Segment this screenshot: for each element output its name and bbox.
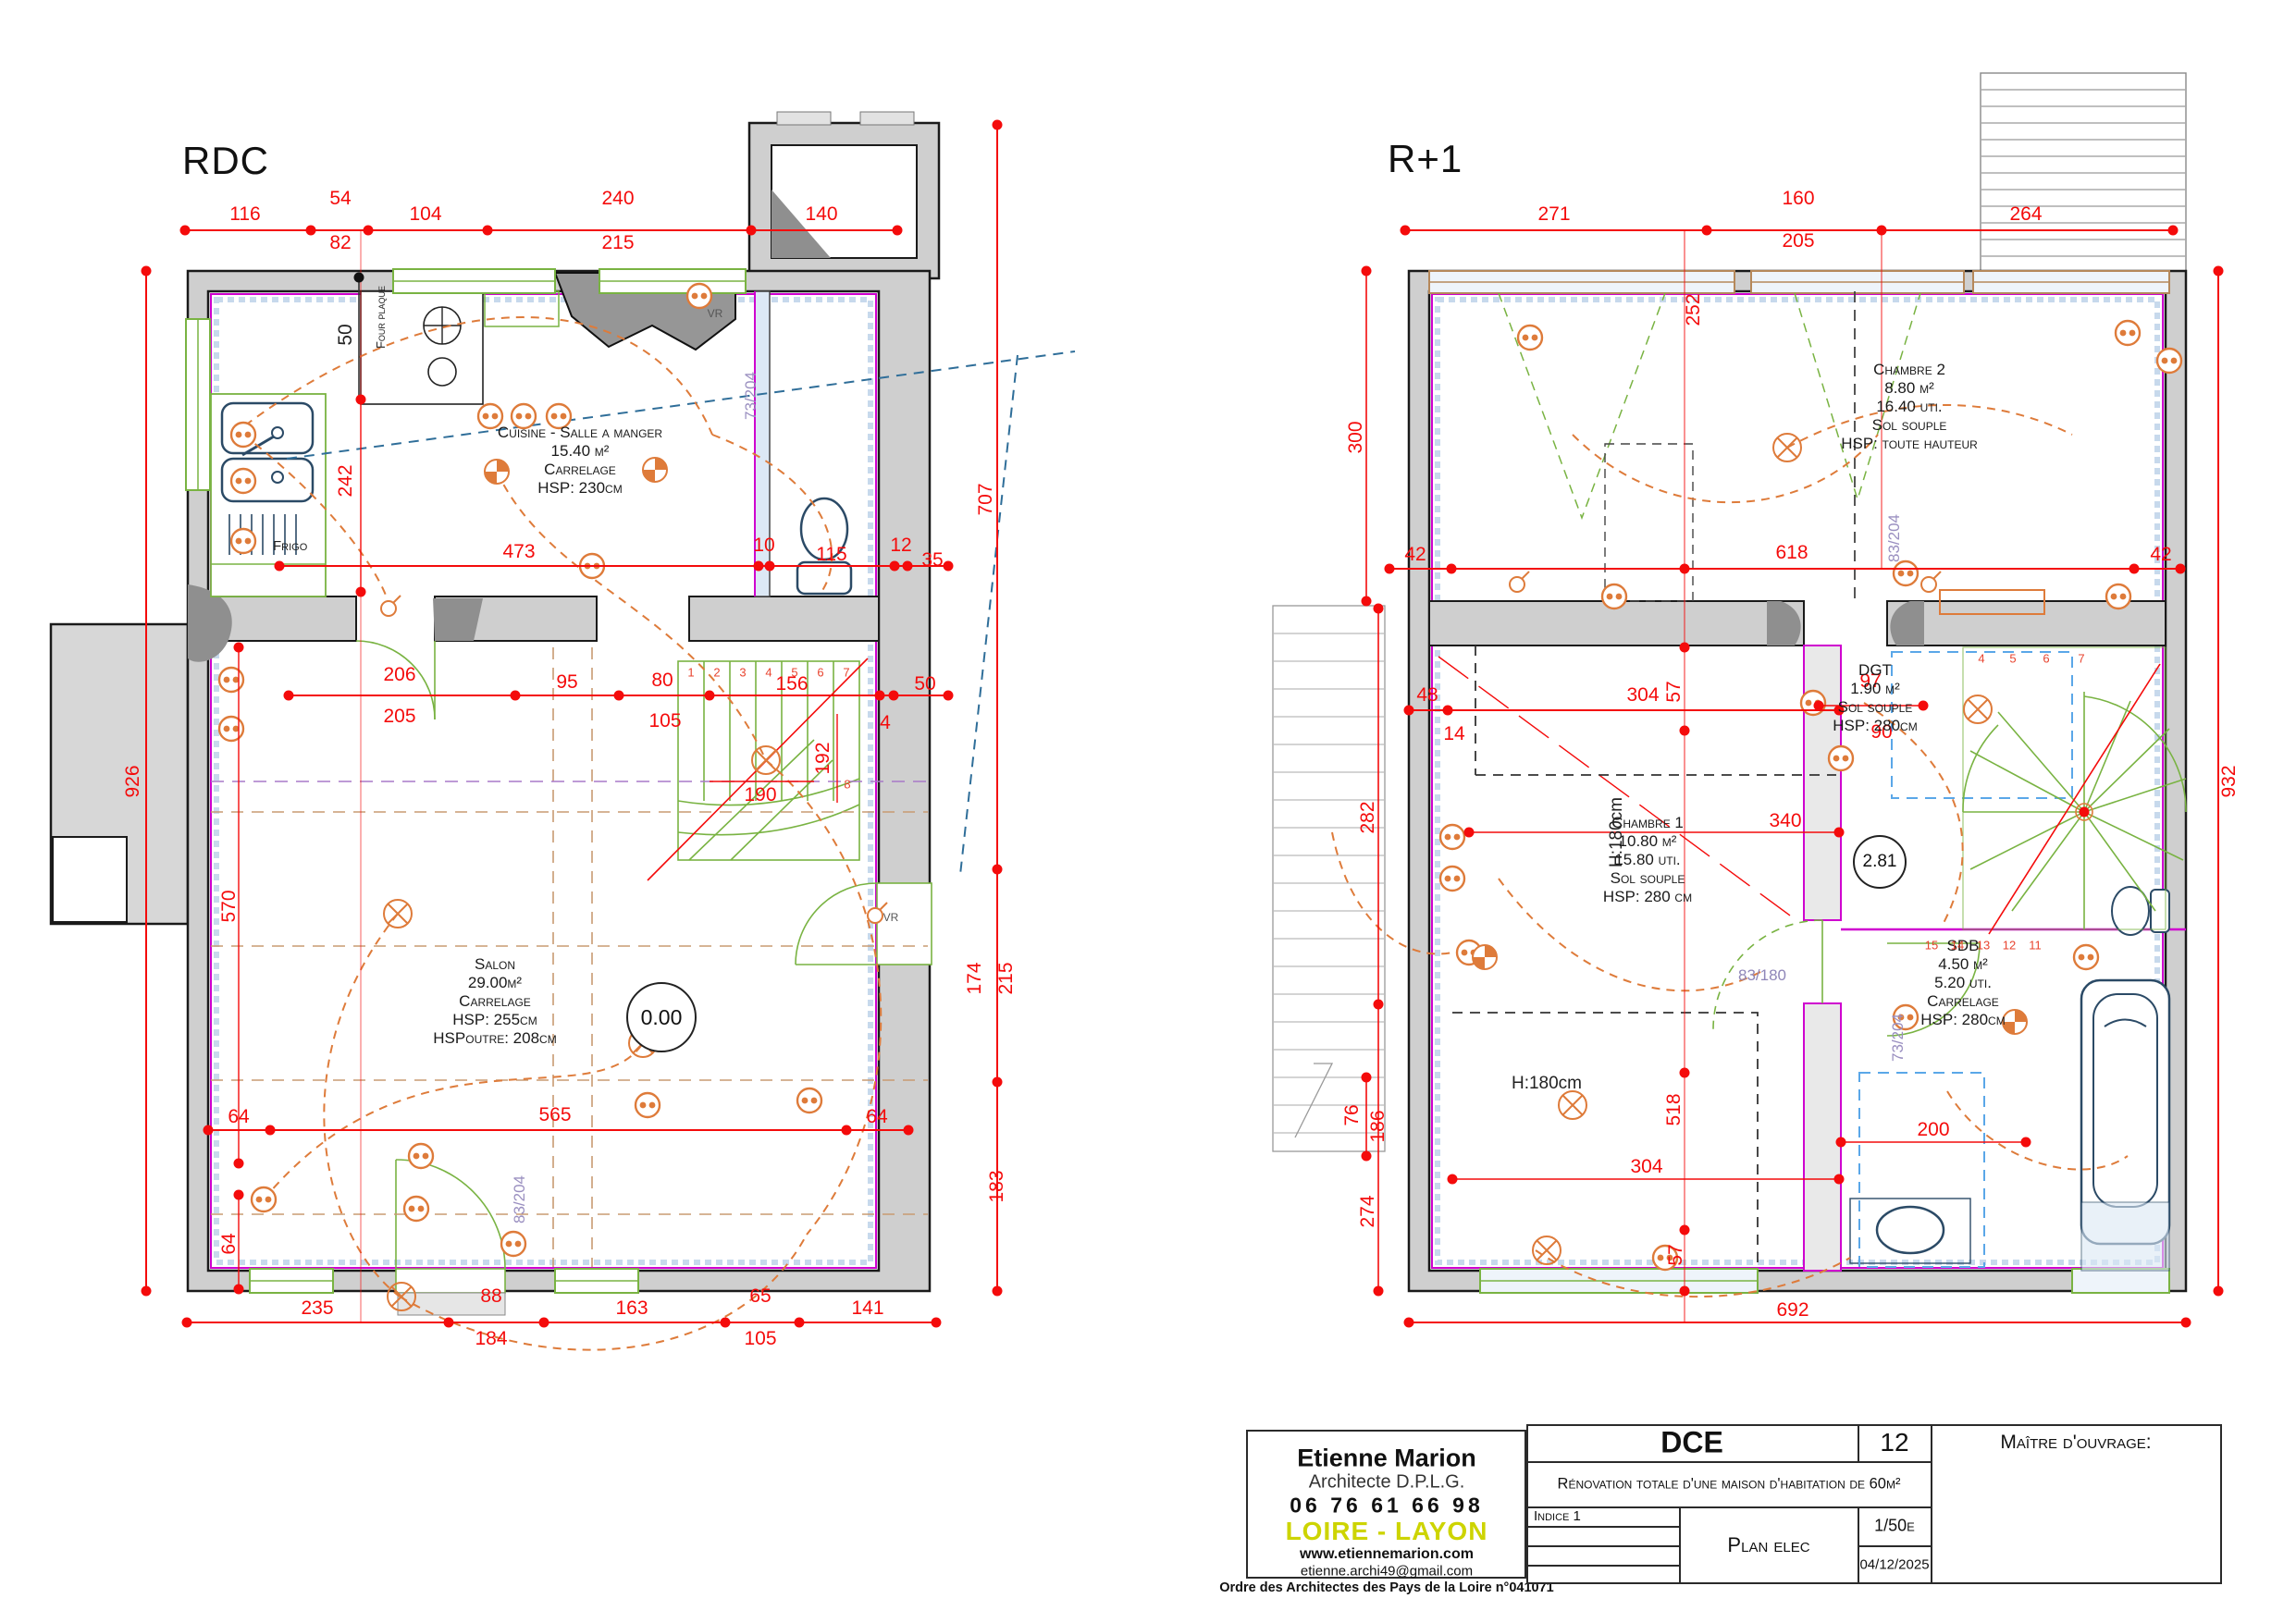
- rdc-plan-title: RDC: [182, 139, 269, 183]
- room-label-cuisine: Cuisine - Salle a manger 15.40 m² Carrel…: [498, 424, 662, 498]
- dimension-label: 932: [2218, 765, 2240, 797]
- room-area-useful: 5.20 uti.: [1920, 974, 2005, 992]
- dimension-label: 565: [538, 1104, 571, 1126]
- dimension-label: 186: [1367, 1110, 1389, 1142]
- indice-label: Indice 1: [1534, 1508, 1581, 1524]
- dimension-label: 271: [1537, 203, 1570, 226]
- door-size-label: 73/204: [742, 372, 760, 420]
- dimension-label: 10: [753, 535, 774, 557]
- room-floor: Sol souple: [1603, 869, 1692, 888]
- dimension-label: 215: [601, 232, 634, 254]
- stair-number: 5: [2009, 652, 2016, 666]
- stair-number: 5: [791, 666, 797, 680]
- dimension-label: 205: [383, 706, 415, 728]
- dimension-label: 105: [744, 1328, 776, 1350]
- stair-number: 6: [2043, 652, 2049, 666]
- dimension-label: 570: [218, 890, 241, 922]
- dimension-label: 190: [744, 784, 776, 806]
- r1-roof-hatch-left: [1273, 606, 1385, 1151]
- dimension-label: 473: [502, 541, 535, 563]
- floor-plan-sheet: RDC 116 54 82 104 240 215 140 473 10 115…: [0, 0, 2296, 1623]
- dimension-label: 105: [648, 710, 681, 732]
- dimension-label: 35: [921, 549, 943, 572]
- dimension-label: 115: [816, 544, 846, 566]
- stair-number: 11: [2029, 939, 2042, 953]
- dimension-label: 163: [615, 1297, 648, 1320]
- r1-top-windows: [1429, 271, 2169, 518]
- dimension-label: 183: [986, 1170, 1008, 1202]
- r1-roof-hatch-topright: [1981, 73, 2186, 278]
- dimension-label: 707: [975, 483, 997, 515]
- vr-tag: VR: [883, 911, 899, 924]
- architect-title: Architecte D.P.L.G.: [1309, 1472, 1465, 1494]
- room-area-useful: 16.40 uti.: [1841, 398, 1978, 416]
- room-label-dgt: DGT 1.90 m² Sol souple HSP: 280cm: [1833, 661, 1917, 735]
- room-floor: Sol souple: [1841, 416, 1978, 435]
- dimension-label: 618: [1775, 542, 1808, 564]
- level-marker-r1: 2.81: [1853, 835, 1907, 889]
- room-name: Salon: [433, 955, 556, 974]
- dimension-label: 240: [601, 188, 634, 210]
- stair-number: 1: [687, 666, 694, 680]
- cooker-unit: [361, 291, 559, 404]
- dimension-label: 205: [1782, 230, 1814, 252]
- dimension-label: 80: [651, 670, 673, 692]
- stair-number: 12: [2003, 939, 2016, 953]
- r1-plan-title: R+1: [1388, 137, 1463, 181]
- architect-region: LOIRE - LAYON: [1286, 1517, 1488, 1546]
- dimension-label: 65: [749, 1285, 771, 1308]
- reference-line: [287, 351, 1075, 875]
- dimension-label: 104: [409, 203, 441, 226]
- dimension-label: 692: [1776, 1299, 1808, 1322]
- room-floor: Carrelage: [1920, 992, 2005, 1011]
- dimension-label: 12: [890, 535, 911, 557]
- dimension-label: 174: [964, 962, 986, 994]
- room-height: HSP: 280 cm: [1603, 888, 1692, 906]
- stair-number: 6: [817, 666, 823, 680]
- dimension-label: 54: [329, 188, 351, 210]
- room-label-chambre2: Chambre 2 8.80 m² 16.40 uti. Sol souple …: [1841, 361, 1978, 453]
- architect-phone: 06 76 61 66 98: [1290, 1494, 1483, 1518]
- dimension-label: 116: [229, 203, 260, 226]
- sheet-name: Plan elec: [1727, 1533, 1809, 1557]
- stair-number: 7: [2078, 652, 2084, 666]
- date-value: 04/12/2025: [1859, 1557, 1929, 1573]
- room-area: 8.80 m²: [1841, 379, 1978, 398]
- dimension-label: 48: [1416, 684, 1438, 707]
- room-area: 29.00m²: [433, 974, 556, 992]
- owner-label: Maître d'ouvrage:: [2000, 1432, 2151, 1454]
- dimension-label: 14: [1443, 723, 1464, 745]
- level-value: 0.00: [641, 1005, 683, 1030]
- phase-label: DCE: [1660, 1426, 1723, 1460]
- cooker-label: Four plaque: [374, 266, 388, 368]
- room-name: Cuisine - Salle a manger: [498, 424, 662, 442]
- room-area: 15.40 m²: [498, 442, 662, 461]
- dimension-label: 264: [2009, 203, 2042, 226]
- room-floor: Sol souple: [1833, 698, 1917, 717]
- dimension-label: 64: [228, 1106, 249, 1128]
- room-area: 4.50 m²: [1920, 955, 2005, 974]
- stair-number: 13: [1977, 939, 1990, 953]
- architect-website[interactable]: www.etiennemarion.com: [1300, 1546, 1474, 1563]
- room-beam-height: HSPoutre: 208cm: [433, 1029, 556, 1048]
- architect-ordre: Ordre des Architectes des Pays de la Loi…: [1219, 1580, 1554, 1595]
- dimension-label: 206: [383, 664, 415, 686]
- stair-number: 7: [843, 666, 849, 680]
- r1-lower-divider: [1713, 646, 1841, 1271]
- room-height: HSP: 280cm: [1920, 1011, 2005, 1029]
- r1-stair: [1963, 647, 2186, 929]
- dimension-label: 926: [122, 765, 144, 797]
- dimension-label: 252: [1683, 293, 1705, 326]
- dimension-label: 200: [1917, 1119, 1949, 1141]
- toilet-icon: [2112, 887, 2169, 935]
- r1-exterior-walls: [1409, 271, 2186, 1291]
- dimension-label: 95: [556, 671, 577, 694]
- dimension-label: 304: [1630, 1156, 1662, 1178]
- room-floor: Carrelage: [433, 992, 556, 1011]
- stair-number: 4: [765, 666, 772, 680]
- dimension-label: 4: [880, 712, 891, 734]
- room-label-salon: Salon 29.00m² Carrelage HSP: 255cm HSPou…: [433, 955, 556, 1048]
- room-name: Chambre 2: [1841, 361, 1978, 379]
- room-height: HSP: toute hauteur: [1841, 435, 1978, 453]
- dimension-label: 192: [812, 742, 834, 774]
- dimension-label: 76: [1341, 1104, 1364, 1125]
- dimension-label: 184: [475, 1328, 507, 1350]
- height-limit-label: H:180cm: [1512, 1074, 1582, 1094]
- stair-number: 4: [1978, 652, 1984, 666]
- dimension-label: 64: [866, 1106, 887, 1128]
- dimension-label: 42: [2150, 544, 2171, 566]
- stair-number: 8: [844, 778, 850, 792]
- stair-number: 15: [1925, 939, 1938, 953]
- dimension-label: 141: [851, 1297, 883, 1320]
- dimension-label: 160: [1782, 188, 1814, 210]
- dimension-label: 235: [301, 1297, 333, 1320]
- room-height: HSP: 255cm: [433, 1011, 556, 1029]
- dimension-label: 340: [1769, 810, 1801, 832]
- height-limit-label: H:180cm: [1607, 797, 1627, 867]
- room-floor: Carrelage: [498, 461, 662, 479]
- dimension-label: 64: [218, 1233, 241, 1254]
- dimension-label: 518: [1663, 1093, 1685, 1125]
- dimension-label: 57: [1665, 1244, 1687, 1265]
- r1-plan: [1273, 73, 2224, 1328]
- r1-dgt-outline: [1892, 652, 2072, 798]
- dimension-label: 304: [1626, 684, 1659, 707]
- dimension-label: 50: [914, 673, 935, 695]
- dimension-label: 42: [1404, 544, 1426, 566]
- door-size-label: 83/180: [1738, 966, 1786, 985]
- door-size-label: 83/204: [1885, 514, 1904, 562]
- dimension-label: 140: [805, 203, 837, 226]
- stair-number: 2: [713, 666, 720, 680]
- room-height: HSP: 230cm: [498, 479, 662, 498]
- washbasin-icon: [1877, 1207, 1944, 1253]
- level-value: 2.81: [1863, 852, 1897, 872]
- room-name: DGT: [1833, 661, 1917, 680]
- room-area: 1.90 m²: [1833, 680, 1917, 698]
- dimension-label: 300: [1345, 421, 1367, 453]
- r1-mid-wall: [1429, 601, 2166, 646]
- dimension-label: 82: [329, 232, 351, 254]
- door-size-label: 83/204: [511, 1175, 529, 1223]
- fridge-label: Frigo: [273, 538, 307, 554]
- room-height: HSP: 280cm: [1833, 717, 1917, 735]
- architect-email[interactable]: etienne.archi49@gmail.com: [1301, 1564, 1473, 1580]
- scale-value: 1/50e: [1874, 1517, 1915, 1536]
- dimension-label: 242: [335, 464, 357, 497]
- vr-tag: VR: [708, 307, 723, 320]
- dimension-label: 274: [1357, 1195, 1379, 1227]
- stair-number: 3: [739, 666, 746, 680]
- dimension-label: 88: [480, 1285, 501, 1308]
- rdc-ceiling-grid: [211, 647, 928, 1267]
- stair-number: 14: [1951, 939, 1964, 953]
- dimension-label: 50: [335, 324, 357, 345]
- dimension-label: 57: [1663, 681, 1685, 702]
- door-size-label: 73/204: [1889, 1014, 1907, 1062]
- dimension-label: 215: [995, 962, 1018, 994]
- architect-name: Etienne Marion: [1297, 1445, 1476, 1473]
- rdc-plan: [51, 112, 1075, 1350]
- dimension-label: 282: [1357, 801, 1379, 833]
- project-description: Rénovation totale d'une maison d'habitat…: [1558, 1476, 1901, 1494]
- sheet-number: 12: [1880, 1428, 1908, 1457]
- level-marker-rdc: 0.00: [626, 982, 697, 1052]
